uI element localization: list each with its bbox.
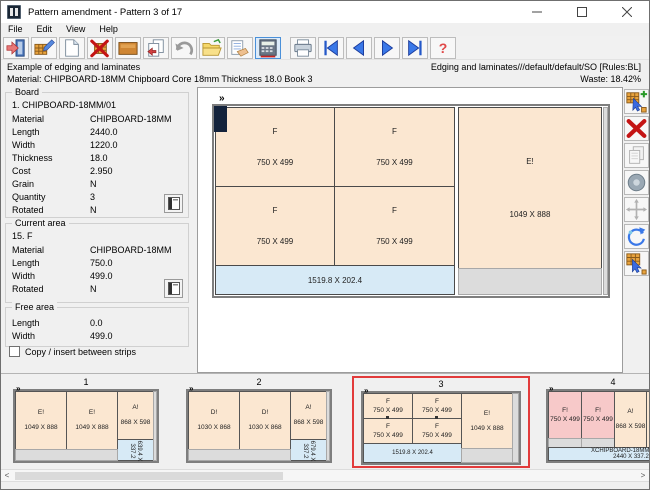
board-group: Board 1. CHIPBOARD-18MM/01 MaterialCHIPB… (5, 92, 189, 218)
thumbnail-3-board[interactable]: » F750 X 499 F750 X 499 F750 X 499 F750 … (361, 391, 521, 465)
waste-value: Waste: 18.42% (431, 73, 641, 85)
last-icon (404, 38, 426, 58)
undo-button[interactable] (171, 37, 197, 59)
delete-pattern-button[interactable] (87, 37, 113, 59)
toolbar: ? (1, 36, 649, 60)
copy-pattern-button[interactable] (143, 37, 169, 59)
menu-edit[interactable]: Edit (30, 23, 60, 36)
thumb2-part-a: A!868 X 598 (290, 391, 327, 440)
copy-insert-label: Copy / insert between strips (25, 347, 136, 357)
current-row-width: Width499.0 (12, 269, 188, 282)
thumb3-waste (461, 448, 513, 463)
thumbnail-2-number: 2 (184, 376, 334, 389)
menu-view[interactable]: View (59, 23, 92, 36)
first-pattern-button[interactable] (318, 37, 344, 59)
thumb1-waste (15, 449, 118, 461)
maximize-button[interactable] (559, 1, 604, 23)
strip-start-marker: » (219, 93, 225, 104)
thumb1-part-a: A!868 X 598 (117, 391, 154, 440)
material-info: Material: CHIPBOARD-18MM Chipboard Core … (7, 73, 312, 85)
board-heading: 1. CHIPBOARD-18MM/01 (12, 99, 188, 112)
part-f-4[interactable]: F750 X 499 (334, 186, 455, 266)
pattern-thumbnails: 1 » E!1049 X 888 E!1049 X 888 A!868 X 59… (1, 373, 649, 469)
thumb1-offcut: 639.4 X 337.2 (117, 439, 154, 461)
titlebar: Pattern amendment - Pattern 3 of 17 (1, 1, 649, 23)
pattern-edit-icon (32, 38, 56, 58)
delete-part-icon (625, 117, 648, 140)
current-area-heading: 15. F (12, 230, 188, 243)
insert-part-icon (625, 90, 648, 113)
open-button[interactable] (199, 37, 225, 59)
board-row-grain: GrainN (12, 177, 188, 190)
first-icon (320, 38, 342, 58)
close-button[interactable] (604, 1, 649, 23)
minimize-button[interactable] (514, 1, 559, 23)
move-part-icon (625, 198, 648, 221)
offcut-strip[interactable]: 1519.8 X 202.4 (215, 265, 455, 295)
thumb1-part-e1: E!1049 X 888 (15, 391, 67, 450)
app-icon (7, 5, 21, 19)
thumb2-waste (188, 449, 291, 461)
board-row-length: Length2440.0 (12, 125, 188, 138)
recut-mark (435, 416, 438, 419)
thumb3-offcut: 1519.8 X 202.4 (363, 443, 462, 463)
previous-pattern-button[interactable] (346, 37, 372, 59)
rotate-part-button[interactable] (624, 224, 649, 249)
thumb3-part-e: E!1049 X 888 (461, 393, 513, 449)
thumb2-part-d1: D!1030 X 868 (188, 391, 240, 450)
previous-icon (348, 38, 370, 58)
board-row-cost: Cost2.950 (12, 164, 188, 177)
edge-trim (603, 107, 608, 295)
delete-part-button[interactable] (624, 116, 649, 141)
next-pattern-button[interactable] (374, 37, 400, 59)
thumb1-edge-trim (153, 391, 157, 461)
page-icon (168, 197, 180, 210)
thumb3-edge-trim (512, 393, 519, 463)
new-pattern-button[interactable] (59, 37, 85, 59)
next-icon (376, 38, 398, 58)
run-parameters: Edging and laminates///default/default/S… (431, 61, 641, 73)
free-row-length: Length0.0 (12, 316, 188, 329)
thumbnail-2-board[interactable]: » D!1030 X 868 D!1030 X 868 A!868 X 598 … (186, 389, 332, 463)
new-document-icon (60, 38, 84, 58)
calculator-icon (256, 38, 280, 58)
exit-icon (4, 38, 28, 58)
copy-insert-checkbox[interactable] (9, 346, 20, 357)
free-area-title: Free area (12, 302, 57, 312)
thumb4-part-f1: F!750 X 499 (548, 391, 582, 439)
free-row-width: Width499.0 (12, 329, 188, 342)
current-row-rotated: RotatedN (12, 282, 188, 295)
board-row-quantity: Quantity3 (12, 190, 188, 203)
part-e[interactable]: E!1049 X 888 (458, 107, 602, 269)
copy-part-icon (625, 144, 648, 167)
thumb4-offcut: XCHIPBOARD-18MM/000030 2440 X 337.2 (548, 447, 649, 461)
copy-page-icon (144, 38, 168, 58)
maximize-icon (577, 7, 587, 17)
review-runs-button[interactable] (227, 37, 253, 59)
thumb4-part-a2: A!868 X 598 (646, 391, 649, 448)
recut-mark (386, 416, 389, 419)
current-area-info-button[interactable] (164, 279, 183, 298)
window-title: Pattern amendment - Pattern 3 of 17 (28, 7, 182, 18)
page-icon (168, 282, 180, 295)
window-controls (514, 1, 649, 23)
current-area-title: Current area (12, 218, 69, 228)
scrollbar-thumb[interactable] (15, 472, 283, 480)
change-part-icon (625, 252, 648, 275)
thumbnail-scrollbar[interactable]: < > (1, 469, 649, 481)
delete-pattern-icon (88, 38, 112, 58)
saw-blade-icon (625, 171, 648, 194)
hand-list-icon (228, 38, 252, 58)
board-info-button[interactable] (164, 194, 183, 213)
thumb1-part-e2: E!1049 X 888 (66, 391, 118, 450)
thumb2-offcut: 679.4 X 337.2 (290, 439, 327, 461)
help-icon: ? (439, 41, 448, 55)
board-group-title: Board (12, 87, 42, 97)
part-f-2[interactable]: F750 X 499 (334, 107, 455, 187)
board-row-thickness: Thickness18.0 (12, 151, 188, 164)
calculator-button[interactable] (255, 37, 281, 59)
menu-help[interactable]: Help (92, 23, 125, 36)
thumbnail-4-number: 4 (539, 376, 649, 389)
current-row-material: MaterialCHIPBOARD-18MM (12, 243, 188, 256)
thumbnail-pattern-1: 1 » E!1049 X 888 E!1049 X 888 A!868 X 59… (11, 376, 161, 463)
open-folder-icon (200, 38, 224, 58)
menubar: File Edit View Help (1, 23, 649, 36)
status-bar (1, 481, 649, 489)
current-row-length: Length750.0 (12, 256, 188, 269)
copy-insert-option: Copy / insert between strips (9, 346, 136, 357)
menu-file[interactable]: File (1, 23, 30, 36)
minimize-icon (532, 7, 542, 17)
saw-button[interactable] (624, 170, 649, 195)
part-tools (623, 87, 649, 373)
thumb3-part-f3: F750 X 499 (363, 418, 413, 444)
change-part-button[interactable] (624, 251, 649, 276)
board-icon (116, 38, 140, 58)
copy-part-button[interactable] (624, 143, 649, 168)
thumb2-edge-trim (326, 391, 330, 461)
run-title: Example of edging and laminates (7, 61, 312, 73)
exit-button[interactable] (3, 37, 29, 59)
free-area-group: Free area Length0.0 Width499.0 (5, 307, 189, 347)
thumb3-part-f4: F750 X 499 (412, 418, 462, 444)
current-area-group: Current area 15. F MaterialCHIPBOARD-18M… (5, 223, 189, 303)
part-f-1[interactable]: F750 X 499 (215, 107, 335, 187)
rotate-part-icon (625, 225, 648, 248)
waste-area[interactable] (458, 268, 602, 295)
thumb4-part-a1: A!868 X 598 (614, 391, 647, 448)
board-row-material: MaterialCHIPBOARD-18MM (12, 112, 188, 125)
thumbnail-1-number: 1 (11, 376, 161, 389)
part-f-3[interactable]: F750 X 499 (215, 186, 335, 266)
pattern-board: F750 X 499 F750 X 499 F750 X 499 F750 X … (212, 104, 610, 298)
help-button[interactable]: ? (430, 37, 456, 59)
board-row-width: Width1220.0 (12, 138, 188, 151)
close-icon (622, 7, 632, 17)
move-part-button[interactable] (624, 197, 649, 222)
print-button[interactable] (290, 37, 316, 59)
thumbnail-4-board[interactable]: » F!750 X 499 F!750 X 499 A!868 X 598 A!… (546, 389, 649, 463)
thumbnail-1-board[interactable]: » E!1049 X 888 E!1049 X 888 A!868 X 598 … (13, 389, 159, 463)
thumbnail-pattern-2: 2 » D!1030 X 868 D!1030 X 868 A!868 X 59… (184, 376, 334, 463)
printer-icon (291, 38, 315, 58)
thumb4-part-f2: F!750 X 499 (581, 391, 615, 439)
infobar: Example of edging and laminates Material… (1, 60, 649, 87)
board-row-rotated: RotatedN (12, 203, 188, 216)
undo-icon (172, 38, 196, 58)
app-window: Pattern amendment - Pattern 3 of 17 File… (0, 0, 650, 490)
last-pattern-button[interactable] (402, 37, 428, 59)
pattern-canvas[interactable]: F750 X 499 F750 X 499 F750 X 499 F750 X … (197, 87, 623, 373)
thumbnail-pattern-4: 4 » F!750 X 499 F!750 X 499 A!868 X 598 … (539, 376, 649, 463)
thumbnail-pattern-3-selected: 3 » F750 X 499 F750 X 499 F750 X 499 F75… (352, 376, 530, 468)
insert-part-button[interactable] (624, 89, 649, 114)
thumbnail-3-number: 3 (354, 378, 528, 391)
thumb2-part-d2: D!1030 X 868 (239, 391, 291, 450)
current-position-marker (214, 106, 227, 132)
properties-panel: Board 1. CHIPBOARD-18MM/01 MaterialCHIPB… (1, 87, 197, 373)
board-button[interactable] (115, 37, 141, 59)
edit-pattern-button[interactable] (31, 37, 57, 59)
